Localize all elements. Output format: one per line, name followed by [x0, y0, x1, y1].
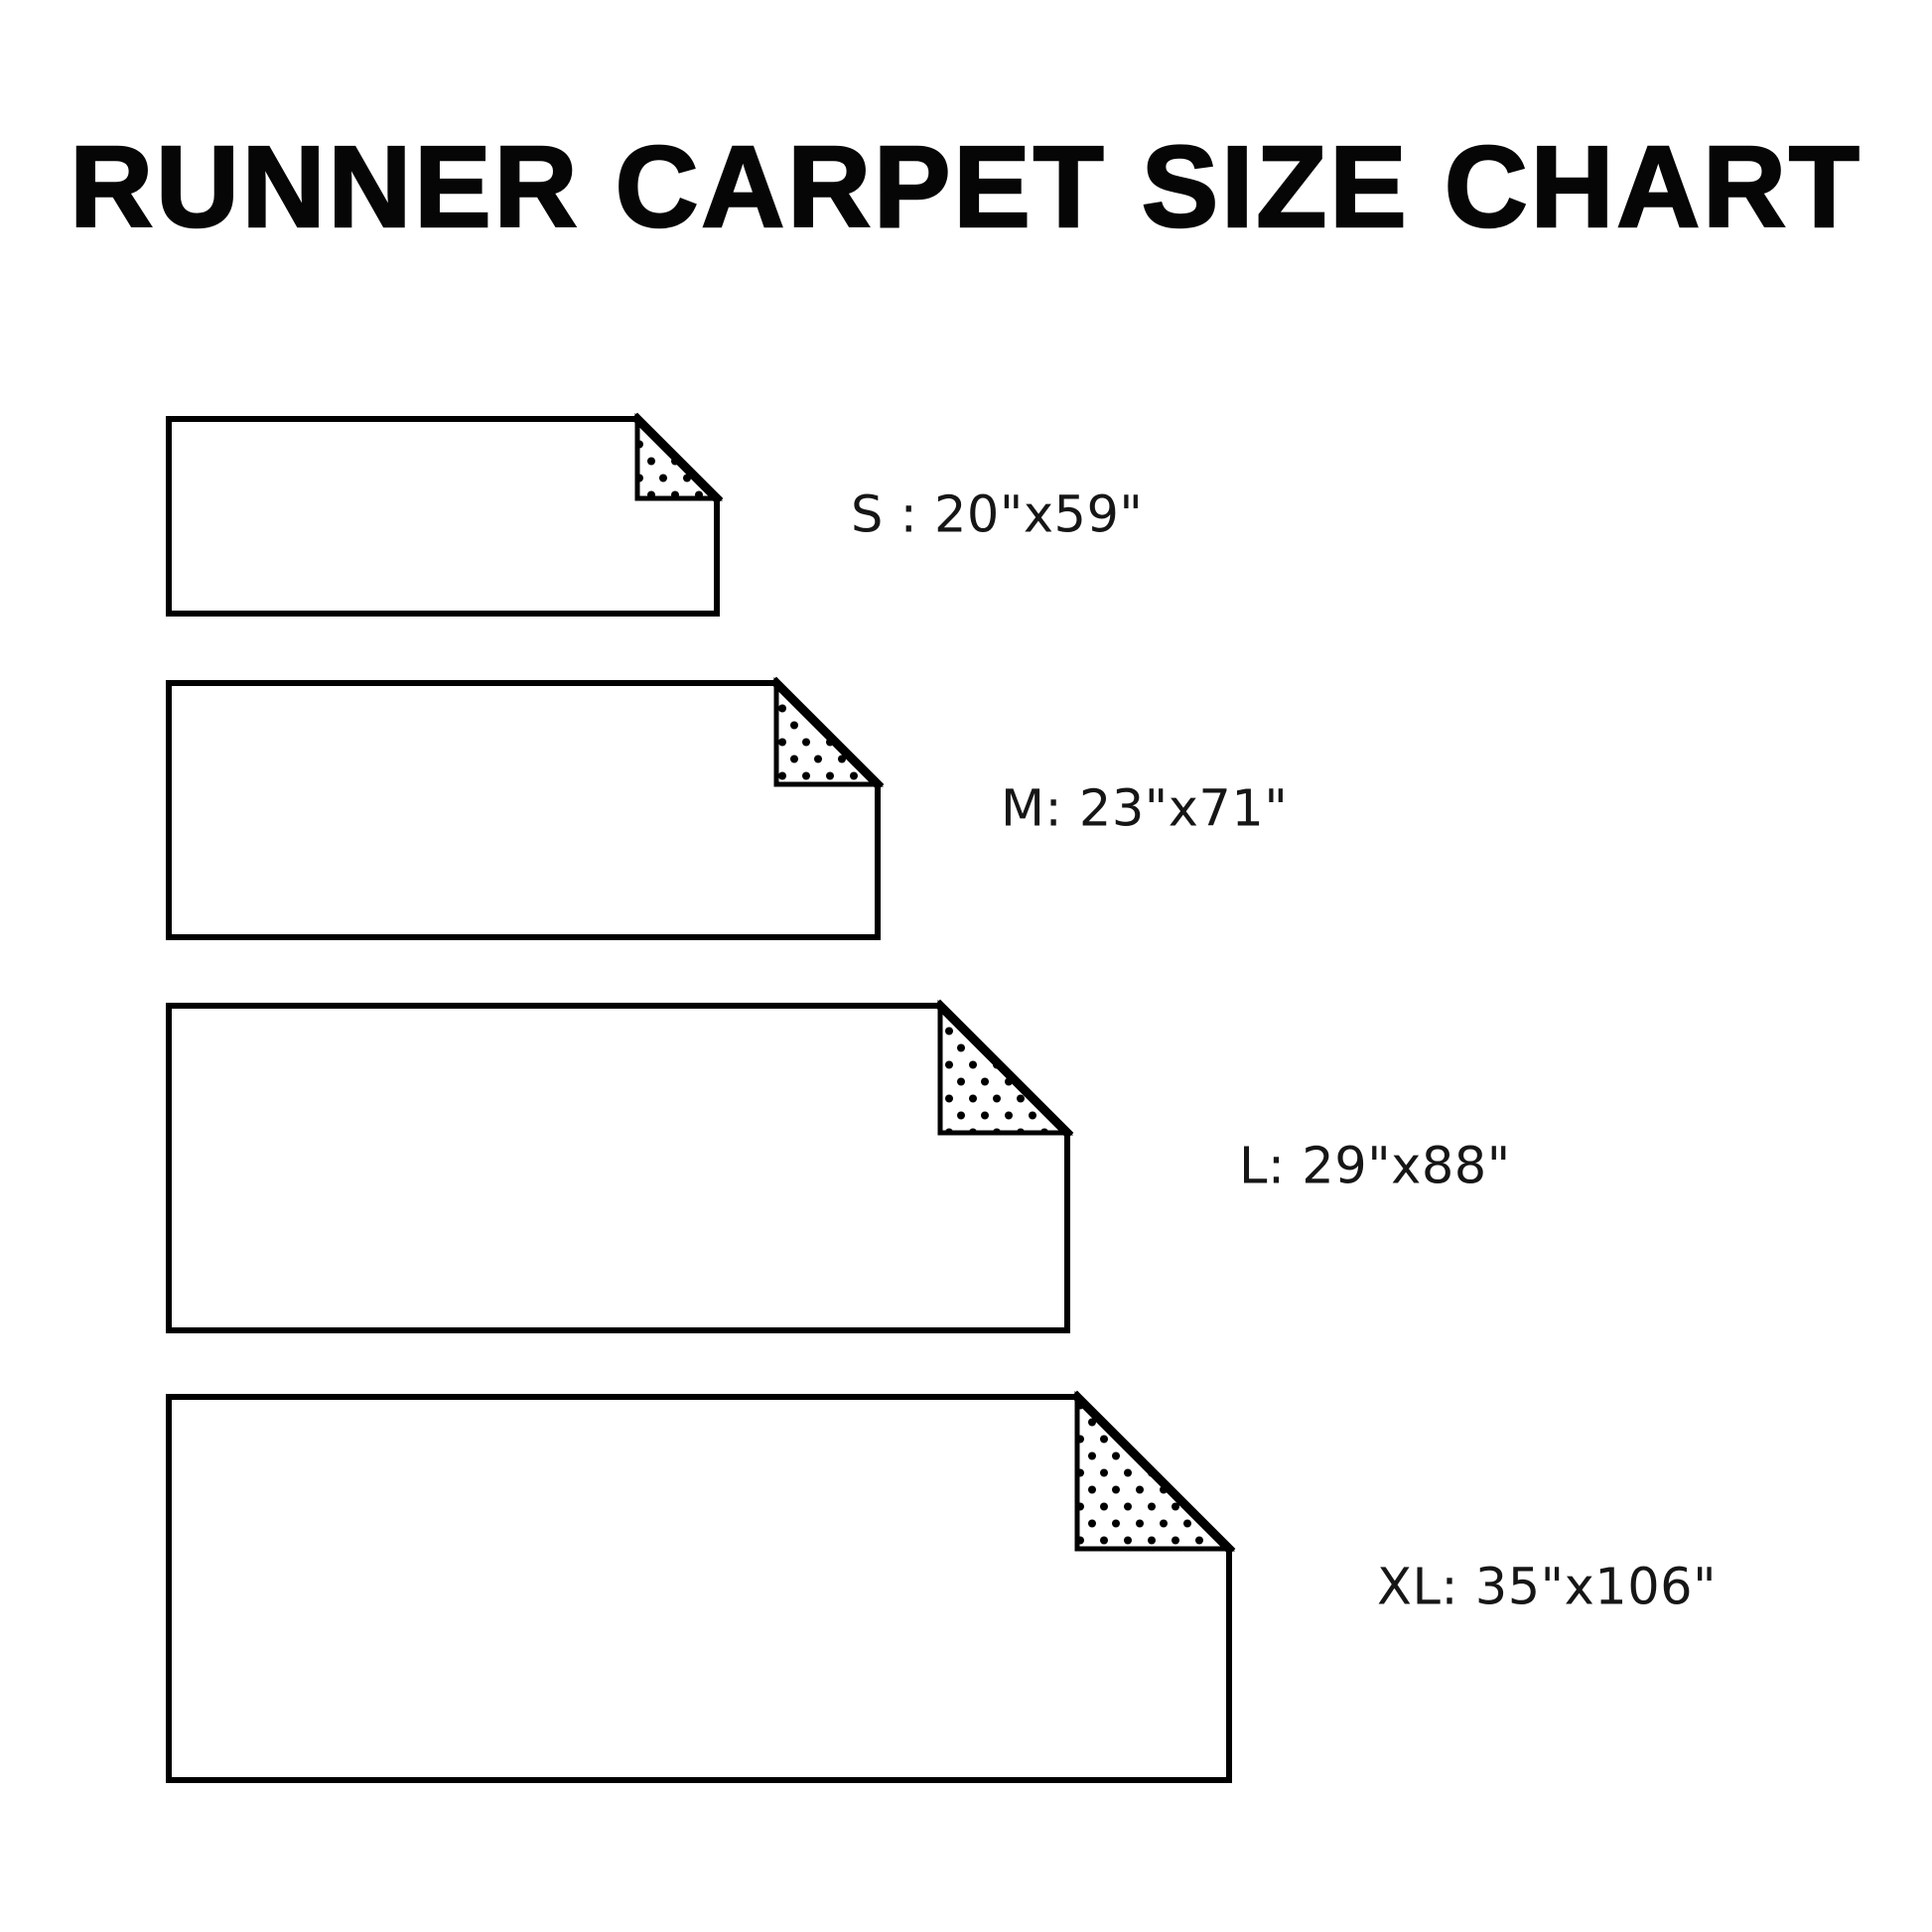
size-label-s: S : 20"x59"	[851, 485, 1143, 544]
carpet-body-s	[169, 419, 717, 614]
carpet-body-m	[169, 683, 878, 937]
carpet-shape-xl	[161, 1389, 1237, 1788]
carpet-size-diagram: S : 20"x59"M: 23"x71"L: 29"x88"XL: 35"x1…	[0, 0, 1932, 1932]
carpet-shape-m	[161, 675, 886, 945]
carpet-body-l	[169, 1006, 1067, 1330]
size-label-xl: XL: 35"x106"	[1377, 1558, 1717, 1616]
size-chart-page: RUNNER CARPET SIZE CHART S : 20"x59"M: 2…	[0, 0, 1932, 1932]
carpet-shape-s	[161, 411, 725, 621]
size-label-l: L: 29"x88"	[1239, 1137, 1511, 1195]
carpet-shape-l	[161, 998, 1075, 1338]
carpet-body-xl	[169, 1397, 1229, 1780]
size-label-m: M: 23"x71"	[1001, 779, 1288, 838]
